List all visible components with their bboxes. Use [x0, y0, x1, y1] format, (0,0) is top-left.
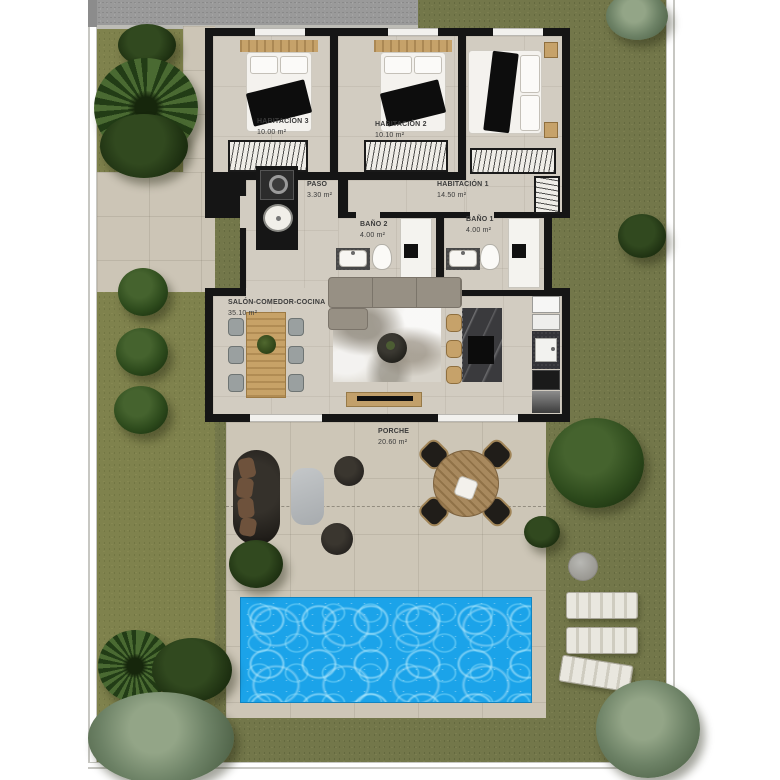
nightstand: [544, 122, 558, 138]
tv: [357, 396, 413, 401]
fridge: [532, 296, 560, 313]
sofa: [328, 277, 462, 308]
faucet: [351, 251, 355, 255]
room-area: 14.50 m²: [437, 191, 489, 202]
outdoor-coffee-table: [291, 468, 324, 525]
window-habitacion-1: [493, 28, 543, 36]
tree: [88, 692, 234, 780]
pillow: [280, 56, 308, 74]
room-area: 10.10 m²: [375, 131, 427, 142]
tree: [548, 418, 644, 508]
cooktop: [468, 336, 494, 364]
bar-stool: [446, 340, 462, 358]
dining-chair: [288, 346, 304, 364]
outdoor-cushion: [237, 457, 257, 480]
bush: [524, 516, 560, 548]
room-name: HABITACIÓN 1: [437, 180, 489, 191]
room-name: BAÑO 1: [466, 215, 494, 226]
outdoor-cushion: [239, 517, 258, 538]
nightstand: [544, 42, 558, 58]
room-label-bano-1: BAÑO 1 4.00 m²: [466, 215, 494, 236]
window-habitacion-3: [255, 28, 305, 36]
window-salon-left: [250, 414, 322, 422]
room-area: 35.10 m²: [228, 309, 325, 320]
washer-door: [269, 175, 288, 194]
pillow: [520, 55, 540, 93]
tree-core: [122, 654, 147, 678]
outdoor-cushion: [236, 477, 255, 499]
bush: [114, 386, 168, 434]
outdoor-cushion: [237, 497, 255, 519]
outdoor-pouf: [321, 523, 353, 555]
washing-machine: [260, 170, 294, 200]
wardrobe-habitacion-1: [470, 148, 556, 174]
room-name: PASO: [307, 180, 332, 191]
table-plant: [386, 341, 395, 350]
shower-column-bano-1: [512, 244, 526, 258]
faucet: [461, 251, 465, 255]
entry-door: [240, 196, 250, 228]
room-label-habitacion-2: HABITACIÓN 2 10.10 m²: [375, 120, 427, 141]
pillow: [520, 95, 540, 131]
pillow: [250, 56, 278, 74]
outdoor-sofa: [233, 450, 280, 545]
room-label-salon: SALÓN-COMEDOR-COCINA 35.10 m²: [228, 298, 325, 319]
dining-chair: [288, 374, 304, 392]
shower-column-bano-2: [404, 244, 418, 258]
tv-console: [346, 392, 422, 407]
room-name: BAÑO 2: [360, 220, 388, 231]
wardrobe-habitacion-1-side: [534, 176, 560, 214]
bush: [116, 328, 168, 376]
floor-plan-scene: HABITACIÓN 3 10.00 m² HABITACIÓN 2 10.10…: [0, 0, 780, 780]
room-name: HABITACIÓN 3: [257, 117, 309, 128]
pillow: [414, 56, 442, 74]
dining-chair: [228, 346, 244, 364]
toilet-bano-1: [480, 244, 500, 270]
room-area: 4.00 m²: [360, 231, 388, 242]
oven: [532, 370, 560, 390]
dining-chair: [228, 374, 244, 392]
bush: [118, 268, 168, 316]
opening-paso-salon: [246, 288, 338, 298]
room-name: HABITACIÓN 2: [375, 120, 427, 131]
sun-lounger: [566, 592, 638, 619]
kitchen-tall-unit: [532, 314, 560, 330]
room-area: 4.00 m²: [466, 226, 494, 237]
sink-drain: [276, 216, 281, 221]
room-area: 20.60 m²: [378, 438, 409, 449]
room-label-paso: PASO 3.30 m²: [307, 180, 332, 201]
toilet-bano-2: [372, 244, 392, 270]
room-label-habitacion-1: HABITACIÓN 1 14.50 m²: [437, 180, 489, 201]
plot-boundary-right: [666, 0, 675, 752]
room-area: 10.00 m²: [257, 128, 309, 139]
sun-lounger: [566, 627, 638, 654]
bar-stool: [446, 366, 462, 384]
dishwasher: [532, 391, 560, 413]
room-name: SALÓN-COMEDOR-COCINA: [228, 298, 325, 309]
utility-sink: [263, 204, 293, 232]
stepping-stone: [568, 552, 598, 581]
boundary-wall-segment: [88, 0, 97, 27]
coffee-table: [377, 333, 407, 363]
tree: [596, 680, 700, 778]
bush: [618, 214, 666, 258]
sofa-chaise: [328, 308, 368, 330]
door-bano-2: [356, 212, 380, 220]
dining-chair: [288, 318, 304, 336]
faucet: [551, 347, 555, 351]
table-plant: [257, 335, 276, 354]
room-label-porche: PORCHE 20.60 m²: [378, 427, 409, 448]
outdoor-pouf: [334, 456, 364, 486]
bed-headboard: [374, 40, 452, 52]
room-name: PORCHE: [378, 427, 409, 438]
pillow: [384, 56, 412, 74]
room-label-habitacion-3: HABITACIÓN 3 10.00 m²: [257, 117, 309, 138]
wardrobe-habitacion-2: [364, 140, 448, 172]
dining-table: [246, 312, 286, 398]
swimming-pool: [240, 597, 532, 703]
window-habitacion-2: [388, 28, 438, 36]
dining-chair: [228, 318, 244, 336]
room-area: 3.30 m²: [307, 191, 332, 202]
bed-headboard: [240, 40, 318, 52]
window-salon-right: [438, 414, 518, 422]
driveway: [97, 0, 418, 27]
bush: [229, 540, 283, 588]
room-label-bano-2: BAÑO 2 4.00 m²: [360, 220, 388, 241]
bush: [100, 114, 188, 178]
bar-stool: [446, 314, 462, 332]
